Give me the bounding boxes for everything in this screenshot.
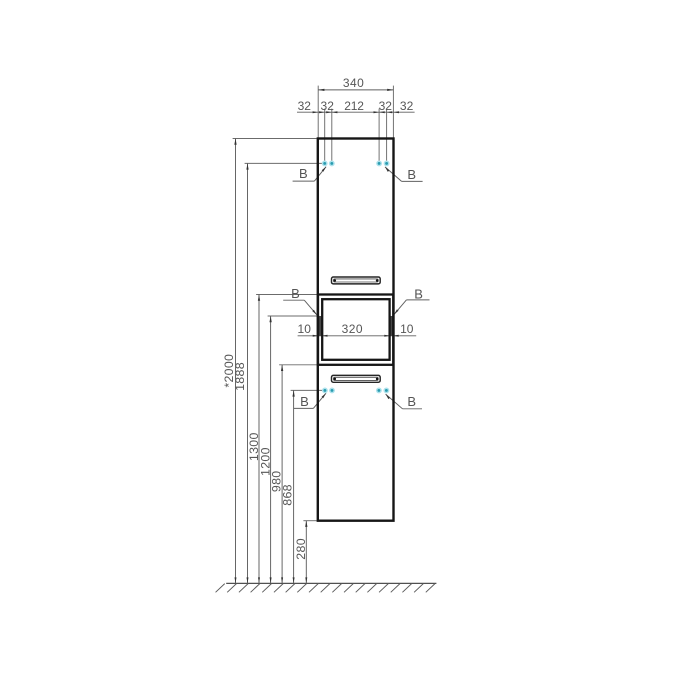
svg-text:868: 868: [281, 484, 295, 506]
svg-text:32: 32: [400, 99, 414, 113]
svg-text:32: 32: [379, 99, 393, 113]
svg-text:320: 320: [342, 322, 363, 336]
svg-text:1888: 1888: [233, 362, 247, 391]
svg-text:B: B: [414, 287, 423, 302]
svg-text:10: 10: [298, 322, 312, 336]
svg-text:280: 280: [294, 538, 308, 560]
svg-text:B: B: [407, 167, 416, 182]
svg-text:B: B: [299, 166, 308, 181]
svg-text:212: 212: [344, 99, 364, 113]
svg-text:B: B: [291, 286, 300, 301]
svg-text:B: B: [407, 394, 416, 409]
svg-text:340: 340: [343, 76, 365, 90]
svg-text:32: 32: [298, 99, 312, 113]
svg-text:32: 32: [321, 99, 335, 113]
svg-text:10: 10: [400, 322, 414, 336]
svg-text:B: B: [300, 394, 309, 409]
